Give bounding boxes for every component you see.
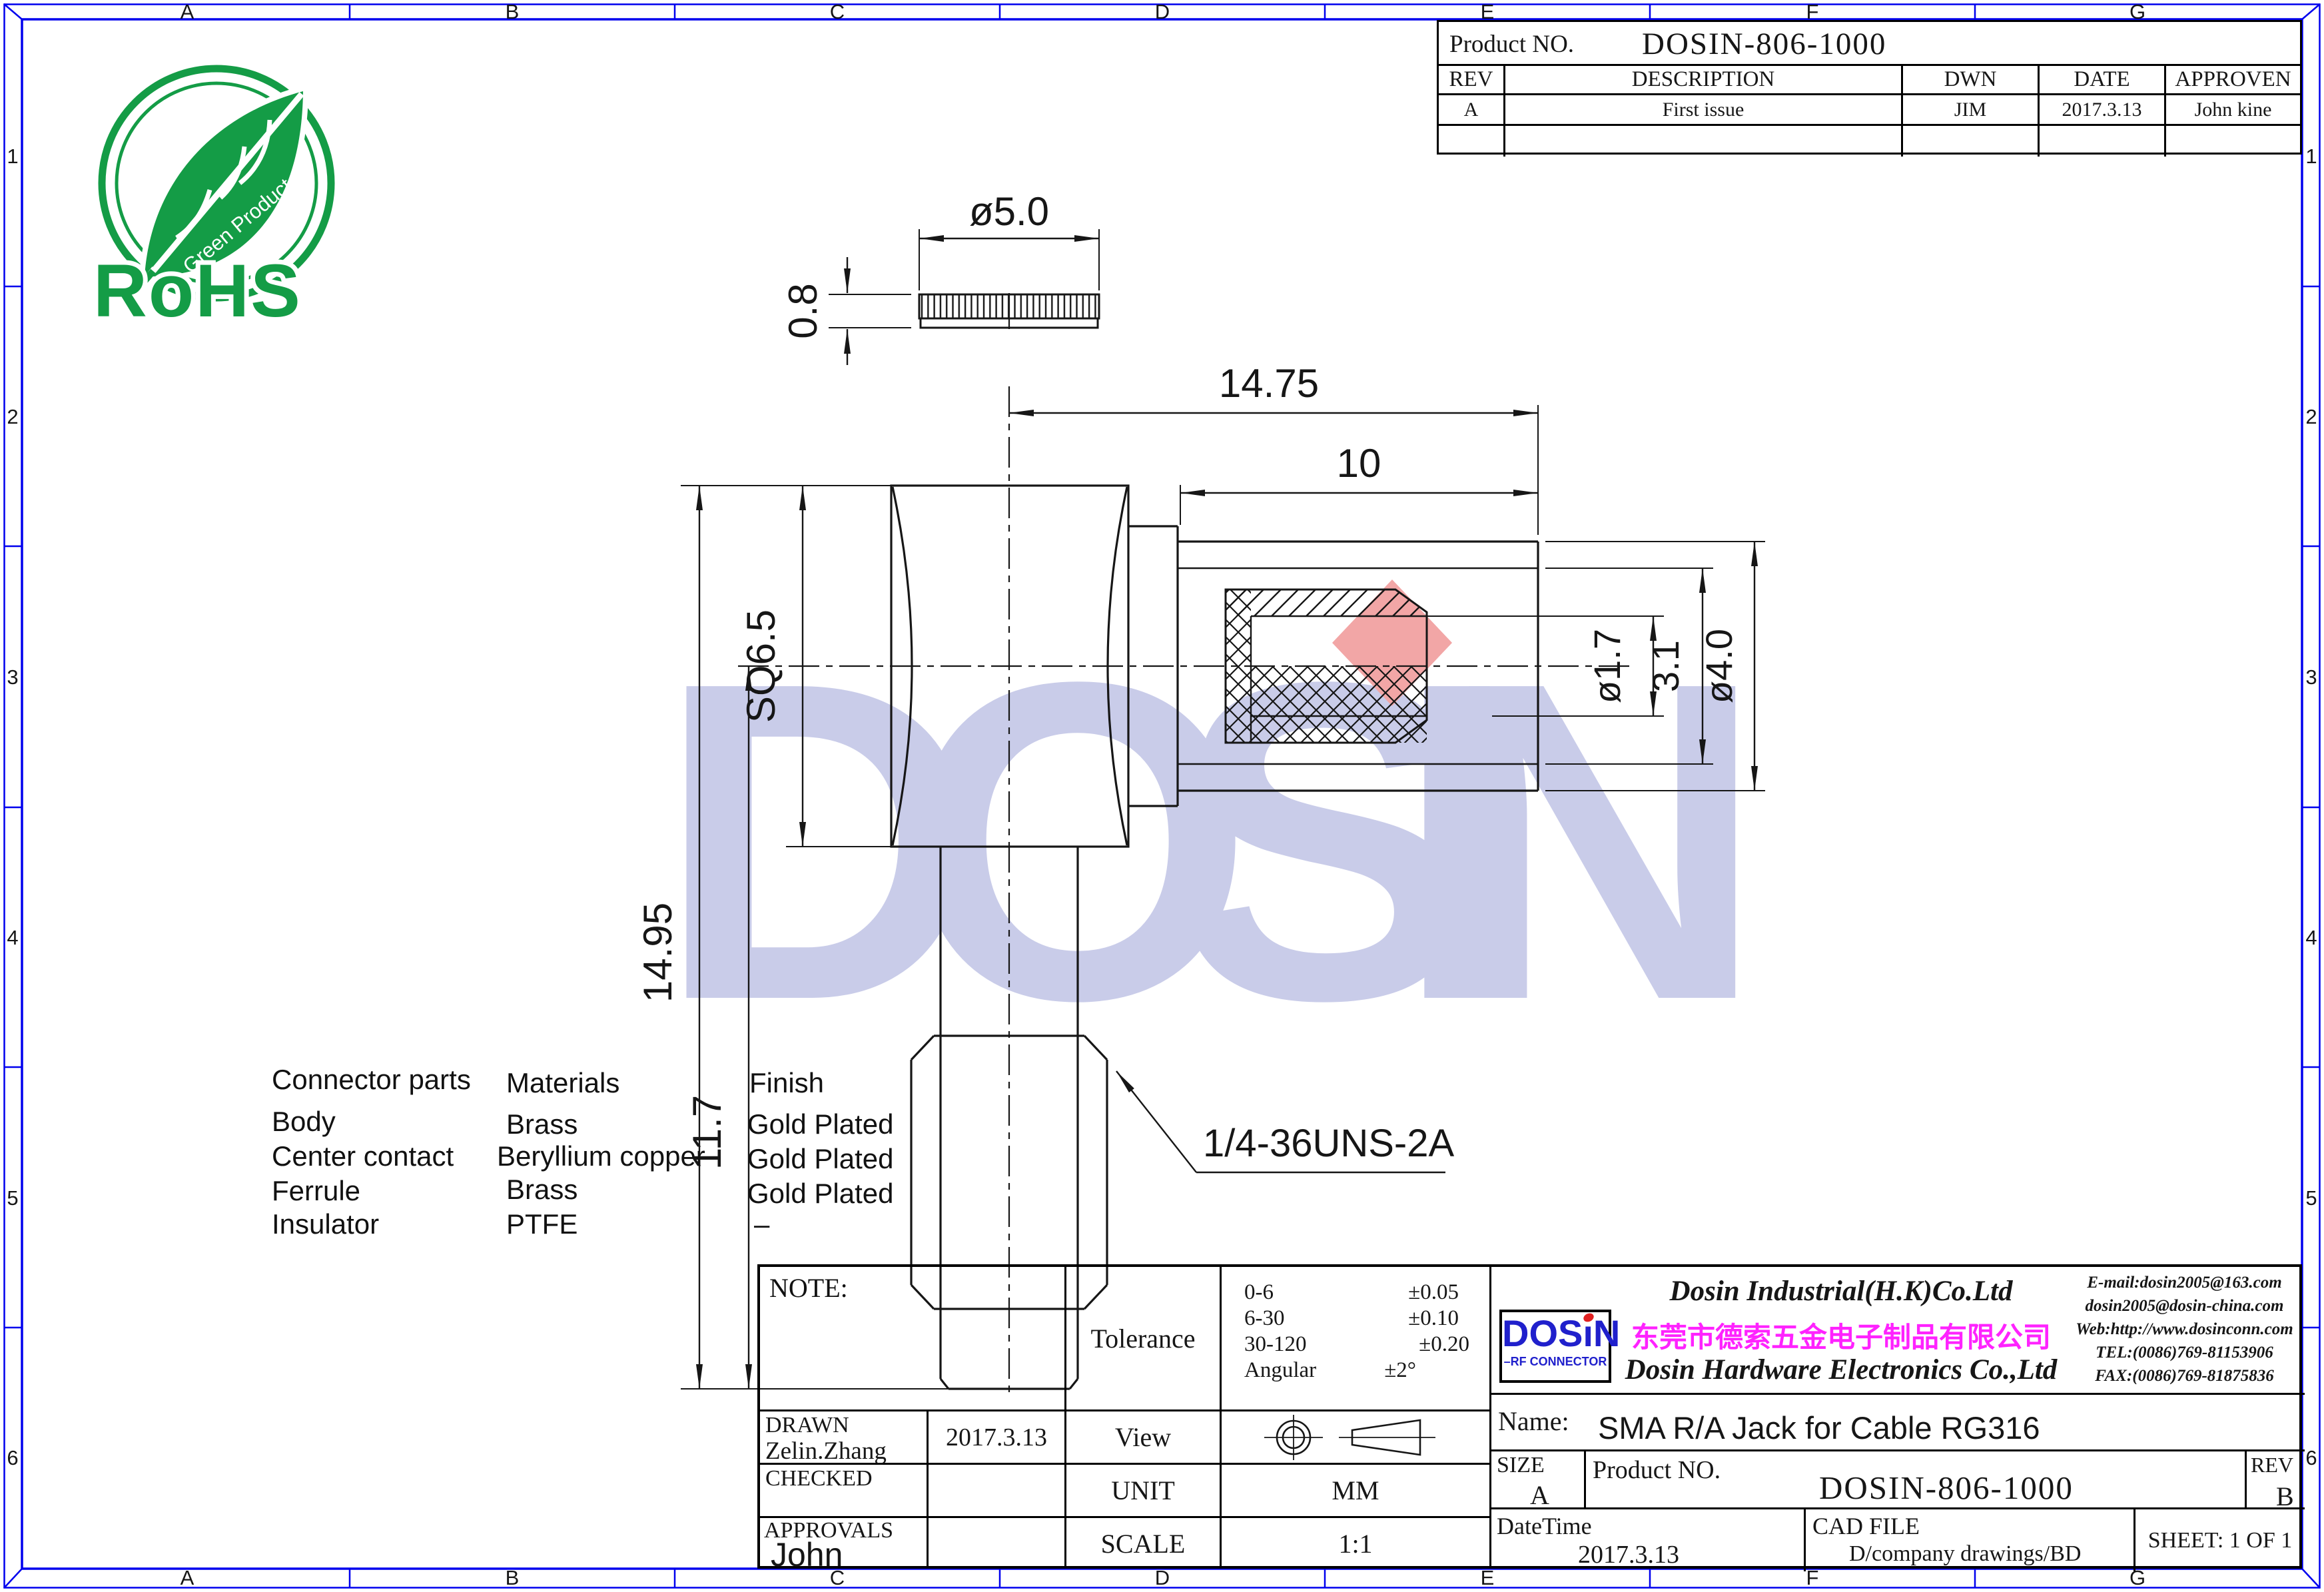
note-label: NOTE: [769, 1272, 848, 1304]
contact-email-2: dosin2005@dosin-china.com [2064, 1294, 2305, 1318]
logo-i: ı [1583, 1312, 1593, 1354]
scale-label: SCALE [1101, 1528, 1186, 1559]
size-value: A [1530, 1479, 1549, 1511]
zone-bottom-d: D [1155, 1566, 1170, 1589]
zone-right-3: 3 [2305, 665, 2317, 689]
sheet-value: SHEET: 1 OF 1 [2148, 1528, 2292, 1553]
zone-left-2: 2 [7, 405, 18, 428]
tolerance-value: ±0.05 [1408, 1280, 1459, 1305]
drawn-date-cell: 2017.3.13 [929, 1411, 1066, 1465]
zone-left-3: 3 [7, 665, 18, 689]
name-cell: Name: SMA R/A Jack for Cable RG316 [1491, 1395, 2305, 1451]
part-finish: – [754, 1208, 769, 1240]
tolerance-row: Angular ±2° [1222, 1357, 1489, 1383]
view-label-cell: View [1066, 1411, 1222, 1465]
part-finish: Gold Plated [747, 1108, 893, 1140]
datetime-label: DateTime [1497, 1512, 1592, 1540]
dim-label-1495: 14.95 [635, 903, 680, 1002]
product-no-cell: Product NO. DOSIN-806-1000 [1586, 1451, 2247, 1509]
dim-08 [829, 257, 911, 365]
zone-top-a: A [181, 0, 194, 23]
cad-file-cell: CAD FILE D/company drawings/BD [1806, 1509, 2135, 1571]
parts-header-materials: Materials [506, 1067, 619, 1099]
revision-row-a: A First issue JIM 2017.3.13 John kine [1439, 95, 2300, 126]
cad-file-label: CAD FILE [1812, 1512, 1920, 1540]
note-cell: NOTE: [760, 1267, 1066, 1411]
zone-right-4: 4 [2305, 926, 2317, 949]
part-finish: Gold Plated [747, 1178, 893, 1210]
dosin-logo: DOSıN –RF CONNECTOR [1499, 1310, 1611, 1383]
rev-value: B [2276, 1481, 2294, 1512]
revision-header-row: REV DESCRIPTION DWN DATE APPROVEN [1439, 66, 2300, 95]
dim-label-dia17: ø1.7 [1586, 629, 1628, 703]
part-finish: Gold Plated [747, 1143, 893, 1175]
rev-value: A [1439, 95, 1505, 124]
rev-cell: REV B [2247, 1451, 2305, 1509]
part-name: Center contact [272, 1140, 454, 1172]
unit-label: UNIT [1111, 1475, 1175, 1506]
drawing-sheet: DOSIN A B C D E F G A B C D E F G 1 2 3 … [0, 0, 2324, 1592]
description-empty [1505, 126, 1903, 157]
rohs-title: RoHS [93, 249, 302, 332]
zone-right-6: 6 [2305, 1446, 2317, 1469]
approvals-cell: APPROVALS John [760, 1518, 929, 1569]
size-cell: SIZE A [1491, 1451, 1586, 1509]
dim-10 [1180, 485, 1538, 525]
zone-right-5: 5 [2305, 1186, 2317, 1210]
zone-left-5: 5 [7, 1186, 18, 1210]
drawn-label: DRAWN [765, 1413, 849, 1438]
drawn-name: Zelin.Zhang [765, 1437, 887, 1465]
tolerance-range: 6-30 [1244, 1306, 1285, 1331]
dim-label-sq65: SQ6.5 [739, 609, 783, 723]
tolerance-range: 0-6 [1244, 1280, 1274, 1305]
company-name-en2: Dosin Hardware Electronics Co.,Ltd [1618, 1354, 2064, 1386]
company-name-en1: Dosin Industrial(H.K)Co.Ltd [1618, 1275, 2064, 1308]
logo-part: N [1593, 1312, 1620, 1354]
checked-label: CHECKED [765, 1466, 873, 1491]
approven-value: John kine [2166, 95, 2300, 124]
part-material: Brass [506, 1108, 578, 1140]
zone-left-6: 6 [7, 1446, 18, 1469]
rohs-logo: Green Product RoHS [93, 69, 331, 332]
description-header: DESCRIPTION [1505, 66, 1903, 93]
unit-value-cell: MM [1222, 1465, 1491, 1518]
zone-left-1: 1 [7, 145, 18, 168]
drawn-date: 2017.3.13 [946, 1423, 1047, 1452]
dim-label-31: 3.1 [1645, 640, 1687, 692]
product-no-value: DOSIN-806-1000 [1819, 1469, 2074, 1507]
tolerance-value: ±2° [1384, 1358, 1416, 1383]
logo-subtitle: –RF CONNECTOR [1502, 1355, 1609, 1369]
zone-left-4: 4 [7, 926, 18, 949]
approvals-date-cell [929, 1518, 1066, 1569]
scale-value-cell: 1:1 [1222, 1518, 1491, 1569]
top-view-knurl-disc [919, 293, 1099, 329]
tolerance-range: Angular [1244, 1358, 1316, 1383]
scale-label-cell: SCALE [1066, 1518, 1222, 1569]
rev-header: REV [1439, 66, 1505, 93]
approven-header: APPROVEN [2166, 66, 2300, 93]
view-label: View [1115, 1421, 1171, 1453]
description-value: First issue [1505, 95, 1903, 124]
contact-email-1: E-mail:dosin2005@163.com [2064, 1271, 2305, 1294]
dim-label-dia5: ø5.0 [969, 189, 1049, 234]
zone-top-d: D [1155, 0, 1170, 23]
dosin-logo-text: DOSıN [1502, 1314, 1620, 1354]
cad-file-value: D/company drawings/BD [1849, 1541, 2081, 1567]
tolerance-row: 30-120 ±0.20 [1222, 1331, 1489, 1357]
revision-row-empty [1439, 126, 2300, 157]
view-symbol-cell [1222, 1411, 1491, 1465]
revision-table: Product NO. DOSIN-806-1000 REV DESCRIPTI… [1437, 20, 2302, 155]
tolerance-label-cell: Tolerance [1066, 1267, 1222, 1411]
checked-date-cell [929, 1465, 1066, 1518]
product-no-label: Product NO. [1593, 1455, 1721, 1485]
thread-callout: 1/4-36UNS-2A [1203, 1122, 1454, 1165]
part-name: Ferrule [272, 1175, 360, 1207]
part-material: Brass [506, 1174, 578, 1206]
part-material: PTFE [506, 1208, 578, 1240]
rev-empty [1439, 126, 1505, 157]
dim-label-dia40: ø4.0 [1698, 629, 1740, 703]
checked-cell: CHECKED [760, 1465, 929, 1518]
parts-header-finish: Finish [749, 1067, 824, 1099]
product-no-label: Product NO. [1449, 30, 1574, 59]
zone-top-c: C [830, 0, 845, 23]
contact-tel: TEL:(0086)769-81153906 [2064, 1341, 2305, 1364]
dim-label-10: 10 [1337, 441, 1381, 486]
rev-label: REV [2251, 1453, 2293, 1477]
zone-top-b: B [506, 0, 520, 23]
sheet-cell: SHEET: 1 OF 1 [2135, 1509, 2305, 1571]
zone-bottom-a: A [181, 1566, 194, 1589]
zone-right-2: 2 [2305, 405, 2317, 428]
contact-cell: E-mail:dosin2005@163.com dosin2005@dosin… [2064, 1267, 2305, 1395]
contact-web: Web:http://www.dosinconn.com [2064, 1318, 2305, 1341]
dim-label-1475: 14.75 [1219, 361, 1319, 406]
part-name: Insulator [272, 1208, 379, 1240]
part-title: SMA R/A Jack for Cable RG316 [1598, 1409, 2040, 1446]
company-name-cn: 东莞市德索五金电子制品有限公司 [1618, 1315, 2064, 1356]
tolerance-row: 0-6 ±0.05 [1222, 1279, 1489, 1305]
logo-part: DOS [1502, 1312, 1583, 1354]
tolerance-values-cell: 0-6 ±0.05 6-30 ±0.10 30-120 ±0.20 Angula… [1222, 1267, 1491, 1411]
tolerance-range: 30-120 [1244, 1332, 1307, 1357]
date-empty [2040, 126, 2166, 157]
dim-label-08: 0.8 [781, 283, 825, 338]
product-no-value: DOSIN-806-1000 [1642, 26, 1886, 62]
dim-1475 [1009, 405, 1538, 535]
ferrule-section [1226, 590, 1427, 743]
dwn-header: DWN [1903, 66, 2040, 93]
datetime-cell: DateTime 2017.3.13 [1491, 1509, 1806, 1571]
product-no-row: Product NO. DOSIN-806-1000 [1439, 22, 2300, 66]
size-label: SIZE [1497, 1453, 1545, 1478]
contact-fax: FAX:(0086)769-81875836 [2064, 1364, 2305, 1388]
parts-header-parts: Connector parts [272, 1064, 471, 1096]
datetime-value: 2017.3.13 [1578, 1540, 1679, 1569]
title-block: NOTE: DRAWN Zelin.Zhang 2017.3.13 CHECKE… [757, 1264, 2302, 1569]
scale-value: 1:1 [1338, 1528, 1372, 1559]
dwn-value: JIM [1903, 95, 2040, 124]
name-label: Name: [1498, 1405, 1569, 1437]
approvals-name: John [771, 1535, 843, 1574]
tolerance-value: ±0.10 [1408, 1306, 1459, 1331]
date-header: DATE [2040, 66, 2166, 93]
tolerance-label: Tolerance [1090, 1323, 1195, 1354]
dim-dia5 [919, 229, 1099, 290]
third-angle-projection-icon [1246, 1413, 1465, 1461]
dwn-empty [1903, 126, 2040, 157]
approven-empty [2166, 126, 2300, 157]
part-material: Beryllium copper [497, 1140, 705, 1172]
zone-right-1: 1 [2305, 145, 2317, 168]
unit-value: MM [1332, 1475, 1379, 1506]
date-value: 2017.3.13 [2040, 95, 2166, 124]
tolerance-value: ±0.20 [1419, 1332, 1469, 1357]
tolerance-row: 6-30 ±0.10 [1222, 1305, 1489, 1331]
company-cell: DOSıN –RF CONNECTOR Dosin Industrial(H.K… [1491, 1267, 2064, 1395]
drawn-cell: DRAWN Zelin.Zhang [760, 1411, 929, 1465]
zone-bottom-b: B [506, 1566, 520, 1589]
unit-label-cell: UNIT [1066, 1465, 1222, 1518]
part-name: Body [272, 1106, 336, 1138]
